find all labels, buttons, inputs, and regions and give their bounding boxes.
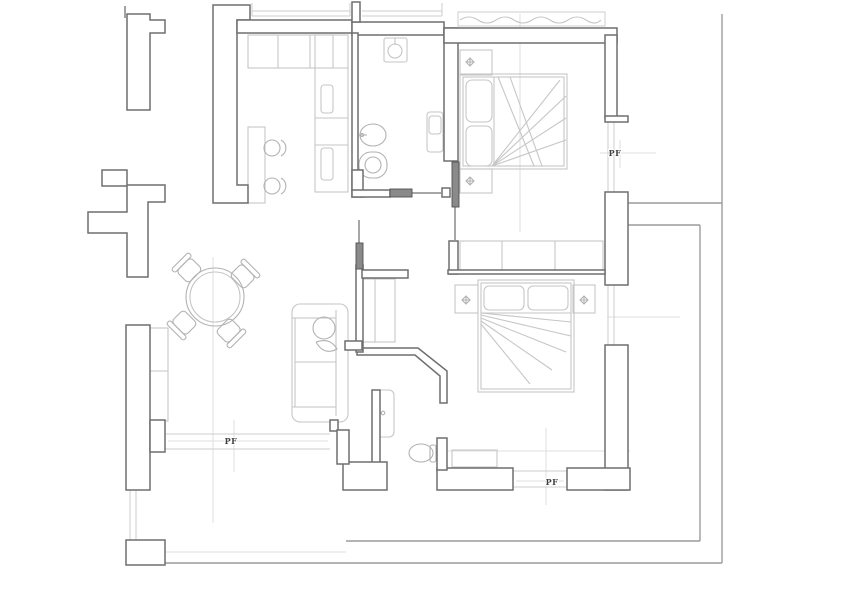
window-top-kitchen [252, 3, 350, 16]
wall-bath1-bed1-divider [444, 28, 458, 161]
wall-east-b [605, 192, 628, 285]
sideboard [150, 328, 168, 421]
window-living-west [130, 490, 136, 540]
window-pf-bedroom2 [513, 471, 567, 487]
wall-bath1-south [352, 190, 390, 197]
wardrobe [460, 241, 603, 270]
wall-entry-pier [88, 170, 165, 277]
toilet-2 [409, 444, 436, 462]
wall-diagonal-bathroom2 [357, 348, 447, 403]
washing-machine [427, 112, 443, 152]
nightstand [460, 169, 492, 193]
sofa-pillow [313, 317, 335, 339]
sliding-door-corridor [356, 220, 363, 269]
wall-kitchen-bath-divider [352, 33, 358, 190]
wall-bathroom2-north [362, 270, 408, 278]
wall-east-pier-a [605, 35, 617, 118]
double-bed-1 [460, 74, 567, 169]
bidet [359, 124, 386, 146]
double-bed-2 [478, 280, 574, 392]
floor-plan-canvas: PF PF PF [0, 0, 849, 600]
nightstand [573, 285, 595, 313]
wall-south-bedroom2-right [567, 468, 630, 490]
wall-south-bedroom2-left [437, 468, 513, 490]
sliding-door-bathroom1 [390, 189, 441, 197]
wall-living-west [126, 325, 150, 490]
shower-closet [363, 279, 395, 342]
wall-bathroom2-west [372, 390, 380, 465]
wall-bedroom1-north [444, 28, 617, 43]
labels-layer: PF PF PF [225, 148, 622, 487]
nightstand [455, 285, 478, 313]
floor-plan-drawing: PF PF PF [0, 0, 849, 600]
pf-label-bedroom1-window: PF [609, 148, 622, 158]
wall-kitchen-west [213, 5, 250, 203]
kitchen-counter [248, 35, 348, 203]
pf-label-bedroom2-window: PF [546, 477, 559, 487]
wall-bedroom-divider [448, 270, 605, 274]
sliding-door-bedroom1 [452, 162, 459, 240]
window-top-bathroom [362, 3, 442, 16]
window-bedroom1-curtain [458, 12, 605, 26]
wall-pier-southwest [126, 540, 165, 565]
window-bedroom2 [608, 285, 614, 345]
dining-chair [166, 308, 199, 341]
sofa [292, 304, 348, 422]
wall-kitchen-north [237, 20, 352, 33]
wall-pier-northwest [127, 14, 165, 110]
bathroom1-sink [384, 38, 407, 62]
bench [452, 450, 497, 467]
nightstand [460, 50, 492, 75]
dining-chair [171, 252, 204, 285]
bar-stool [264, 178, 286, 194]
wall-bath1-north [352, 22, 444, 35]
bar-stool [264, 140, 286, 156]
pf-label-living-window: PF [225, 436, 238, 446]
